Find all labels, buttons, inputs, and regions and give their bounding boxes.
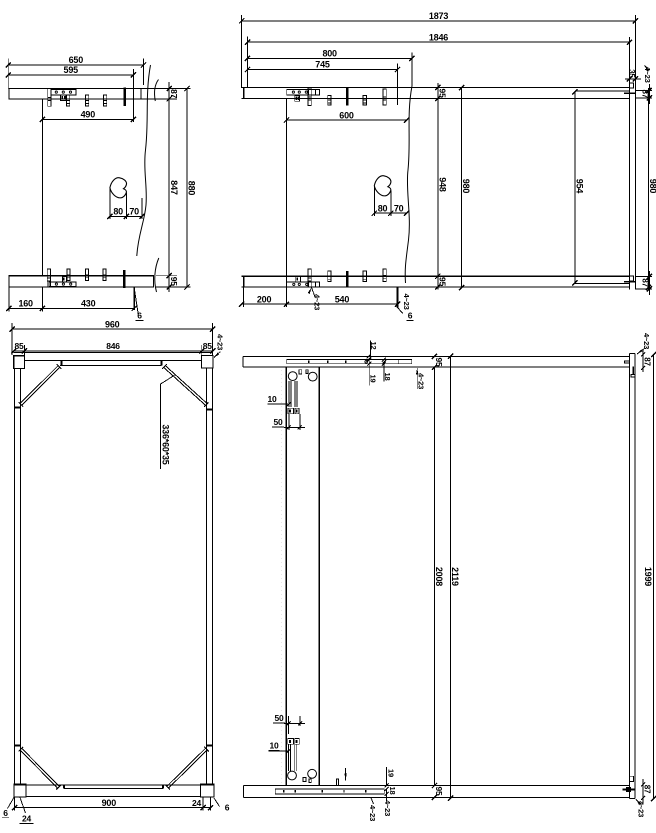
svg-text:600: 600 [339,110,354,120]
svg-text:954: 954 [574,179,584,194]
svg-text:70: 70 [129,207,139,217]
svg-text:19: 19 [386,769,395,777]
svg-text:95: 95 [437,89,447,99]
svg-text:10: 10 [267,394,277,404]
svg-text:846: 846 [106,341,120,351]
svg-text:900: 900 [102,798,117,808]
svg-text:980: 980 [648,179,656,194]
svg-text:18: 18 [388,787,397,795]
svg-text:87: 87 [643,357,652,366]
svg-text:4~23: 4~23 [402,293,411,309]
svg-text:80: 80 [378,203,388,213]
svg-text:80: 80 [113,207,123,217]
svg-text:1846: 1846 [429,32,448,42]
svg-text:4~23: 4~23 [416,373,425,389]
svg-text:4~23: 4~23 [636,801,645,817]
svg-text:4~23: 4~23 [368,805,377,821]
svg-text:336*60*35: 336*60*35 [161,424,171,464]
svg-text:24: 24 [22,814,32,824]
svg-text:50: 50 [273,417,283,427]
svg-text:4~23: 4~23 [216,334,225,350]
svg-text:847: 847 [169,180,179,195]
svg-text:745: 745 [315,60,330,70]
svg-text:19: 19 [368,375,377,383]
svg-text:4~23: 4~23 [642,333,651,349]
svg-text:200: 200 [257,294,272,304]
svg-text:430: 430 [81,299,96,309]
svg-text:85: 85 [203,341,213,351]
svg-text:35: 35 [627,69,636,78]
svg-text:6: 6 [3,808,8,818]
svg-text:95: 95 [434,786,444,796]
svg-text:6: 6 [137,311,142,321]
svg-text:2008: 2008 [434,567,444,586]
svg-text:800: 800 [322,49,337,59]
svg-text:650: 650 [69,55,84,65]
svg-text:85: 85 [15,341,25,351]
svg-text:4~23: 4~23 [383,800,392,816]
svg-text:12: 12 [369,342,378,350]
svg-text:87: 87 [169,89,179,99]
svg-text:50: 50 [274,713,284,723]
svg-text:2119: 2119 [450,567,460,586]
svg-text:70: 70 [394,203,404,213]
svg-text:595: 595 [64,65,79,75]
svg-text:4~23: 4~23 [313,294,322,310]
svg-text:4~23: 4~23 [643,66,652,82]
svg-text:980: 980 [461,179,471,194]
svg-text:880: 880 [187,181,197,196]
svg-text:6: 6 [408,311,413,321]
svg-text:490: 490 [81,110,96,120]
svg-text:18: 18 [383,373,392,381]
svg-text:24: 24 [192,798,202,808]
svg-text:95: 95 [437,277,447,287]
svg-text:95: 95 [169,277,179,287]
svg-text:1873: 1873 [429,11,448,21]
svg-text:960: 960 [105,319,120,329]
svg-text:10: 10 [269,741,279,751]
svg-text:6: 6 [225,803,230,813]
svg-text:540: 540 [335,294,350,304]
svg-text:1999: 1999 [643,567,653,586]
svg-text:948: 948 [437,177,447,192]
svg-text:87: 87 [643,785,652,794]
svg-text:160: 160 [18,299,33,309]
